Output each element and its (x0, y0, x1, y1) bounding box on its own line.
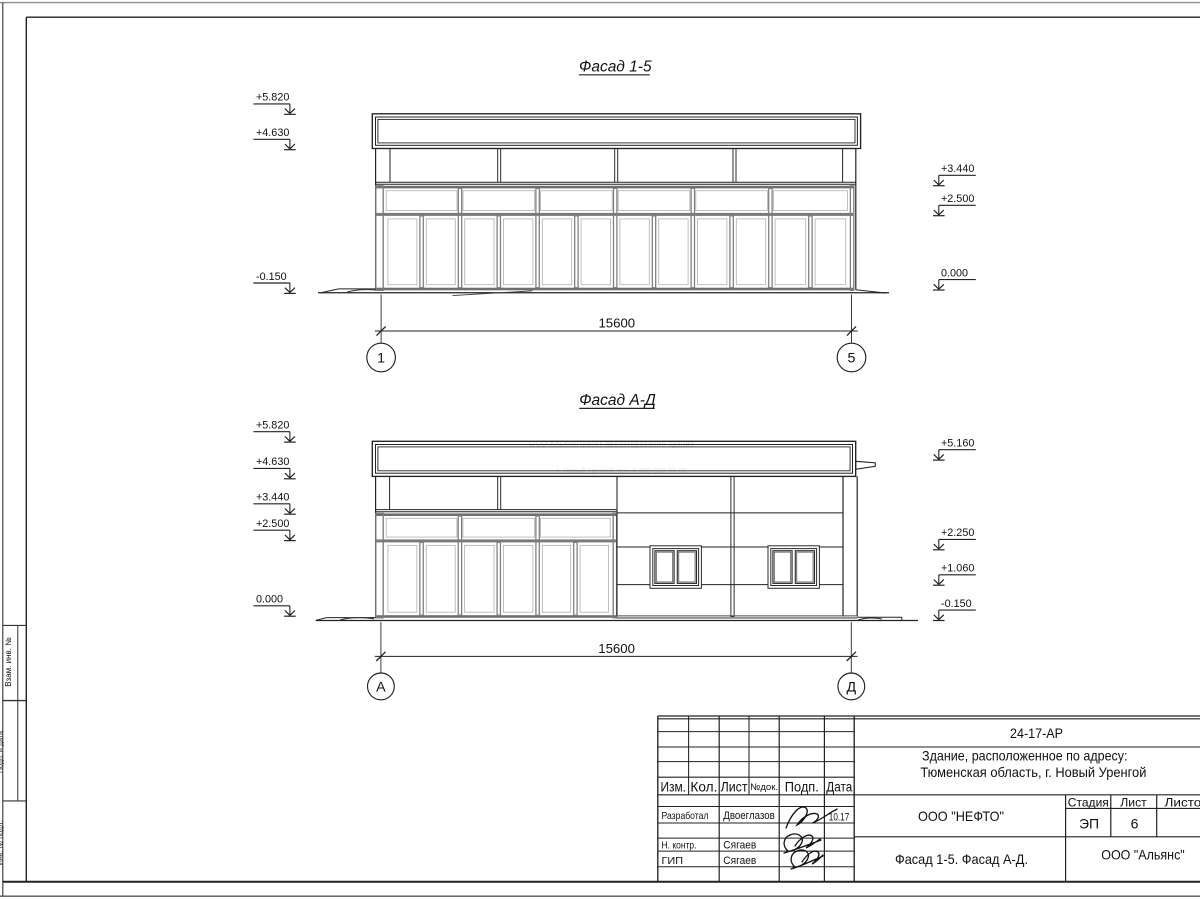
svg-text:Н. контр.: Н. контр. (662, 839, 697, 851)
svg-text:Фасад А-Д: Фасад А-Д (579, 392, 656, 409)
svg-text:Тюменская область, г. Новый Ур: Тюменская область, г. Новый Уренгой (920, 764, 1146, 780)
svg-text:Стадия: Стадия (1068, 795, 1109, 809)
svg-text:ЭП: ЭП (1079, 815, 1099, 831)
svg-text:0.000: 0.000 (941, 267, 968, 279)
svg-text:ООО "Альянс": ООО "Альянс" (1101, 847, 1185, 863)
svg-text:Фасад 1-5. Фасад А-Д.: Фасад 1-5. Фасад А-Д. (895, 851, 1028, 867)
svg-text:Двоеглазов: Двоеглазов (723, 810, 775, 822)
svg-text:-0.150: -0.150 (256, 271, 287, 283)
svg-text:Здание, расположенное по адрес: Здание, расположенное по адресу: (922, 747, 1128, 763)
svg-text:-0.150: -0.150 (941, 598, 972, 610)
svg-text:10.17: 10.17 (829, 811, 850, 823)
svg-text:Листов: Листов (1165, 795, 1200, 809)
svg-text:24-17-АР: 24-17-АР (1010, 725, 1063, 741)
svg-text:Взам. инв. №: Взам. инв. № (4, 637, 13, 687)
svg-text:А: А (376, 679, 386, 695)
svg-text:Инв. № подл.: Инв. № подл. (0, 821, 5, 866)
svg-text:+5.820: +5.820 (256, 92, 289, 104)
svg-text:Кол.: Кол. (690, 779, 717, 794)
svg-text:Изм.: Изм. (660, 779, 686, 794)
svg-text:+5.820: +5.820 (256, 420, 289, 432)
svg-text:Фасад 1-5: Фасад 1-5 (579, 59, 652, 76)
svg-text:15600: 15600 (598, 315, 635, 330)
svg-text:+4.630: +4.630 (256, 127, 289, 139)
svg-text:Д: Д (846, 679, 856, 695)
svg-text:Лист: Лист (721, 779, 748, 794)
svg-text:№док.: №док. (750, 782, 778, 793)
svg-text:+2.500: +2.500 (941, 193, 974, 205)
svg-text:Дата: Дата (826, 779, 852, 794)
svg-text:ГИП: ГИП (662, 855, 684, 867)
svg-text:6: 6 (1131, 815, 1139, 831)
svg-text:Сягаев: Сягаев (723, 855, 756, 867)
svg-text:+4.630: +4.630 (256, 456, 289, 468)
svg-text:0.000: 0.000 (256, 594, 283, 606)
svg-text:+2.250: +2.250 (941, 527, 974, 539)
svg-text:+1.060: +1.060 (941, 563, 974, 575)
svg-text:Лист: Лист (1120, 795, 1147, 809)
svg-text:5: 5 (848, 351, 856, 367)
svg-text:+3.440: +3.440 (256, 492, 289, 504)
svg-text:Сягаев: Сягаев (723, 839, 756, 851)
svg-text:Разработал: Разработал (662, 810, 709, 822)
svg-text:15600: 15600 (598, 641, 635, 656)
svg-text:+5.160: +5.160 (941, 438, 974, 450)
svg-text:+2.500: +2.500 (256, 518, 289, 530)
svg-text:Подп.: Подп. (785, 779, 819, 794)
svg-text:ООО "НЕФТО": ООО "НЕФТО" (918, 808, 1004, 824)
svg-text:1: 1 (377, 351, 385, 367)
svg-text:Подп. и дата: Подп. и дата (0, 731, 5, 773)
svg-text:+3.440: +3.440 (941, 163, 974, 175)
